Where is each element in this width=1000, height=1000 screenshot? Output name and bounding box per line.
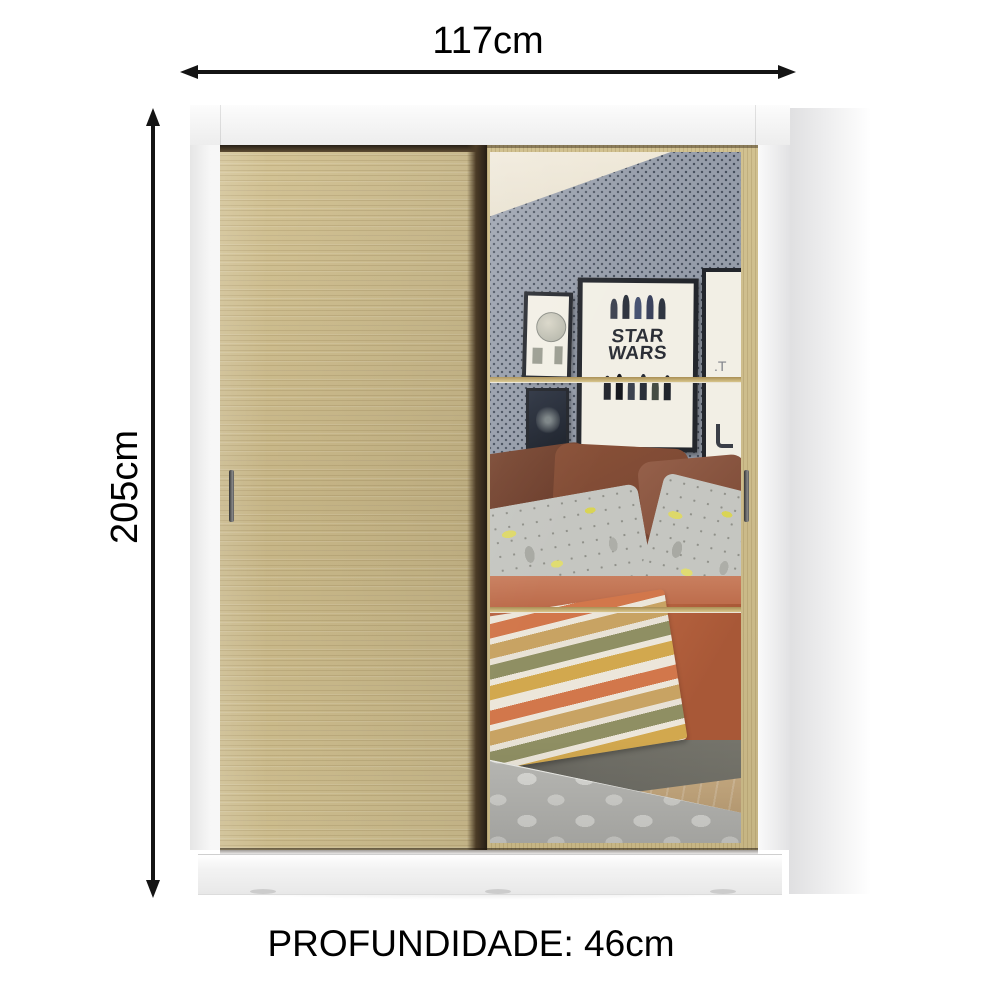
- left-sliding-door-wood: [220, 145, 487, 850]
- height-dimension-label: 205cm: [105, 427, 145, 547]
- mirror-sheen-overlay: [490, 152, 741, 843]
- wardrobe-left-side-panel: [190, 145, 220, 850]
- arrowhead-down-icon: [146, 880, 160, 898]
- depth-dimension-label: PROFUNDIDADE: 46cm: [171, 923, 771, 965]
- right-door-handle: [744, 470, 749, 522]
- top-panel-seam-left: [220, 105, 221, 145]
- foot-shadow: [485, 889, 511, 894]
- left-door-handle: [229, 470, 234, 522]
- top-panel-seam-right: [755, 105, 756, 145]
- wardrobe-right-side-panel: [758, 145, 790, 850]
- product-dimension-image: 117cm 205cm PROFUNDIDADE: 46cm: [0, 0, 1000, 1000]
- width-arrow-line: [192, 70, 784, 74]
- arrowhead-up-icon: [146, 108, 160, 126]
- left-door-top-edge: [220, 145, 487, 152]
- right-sliding-door-mirror: STAR WARS .T: [487, 145, 758, 850]
- width-dimension-label: 117cm: [180, 20, 796, 63]
- wardrobe: STAR WARS .T: [190, 105, 790, 893]
- room-shadow: [789, 108, 871, 894]
- arrowhead-right-icon: [778, 65, 796, 79]
- mirror-panel: STAR WARS .T: [490, 152, 741, 843]
- width-dimension-arrow: [180, 65, 796, 79]
- left-door-right-edge-shadow: [467, 145, 487, 850]
- foot-shadow: [710, 889, 736, 894]
- foot-shadow: [250, 889, 276, 894]
- arrowhead-left-icon: [180, 65, 198, 79]
- left-door-shading: [220, 145, 487, 850]
- wardrobe-top-panel: [190, 105, 790, 145]
- right-door-top-edge: [487, 145, 758, 148]
- height-dimension-arrow: [146, 108, 160, 898]
- height-arrow-line: [151, 120, 155, 886]
